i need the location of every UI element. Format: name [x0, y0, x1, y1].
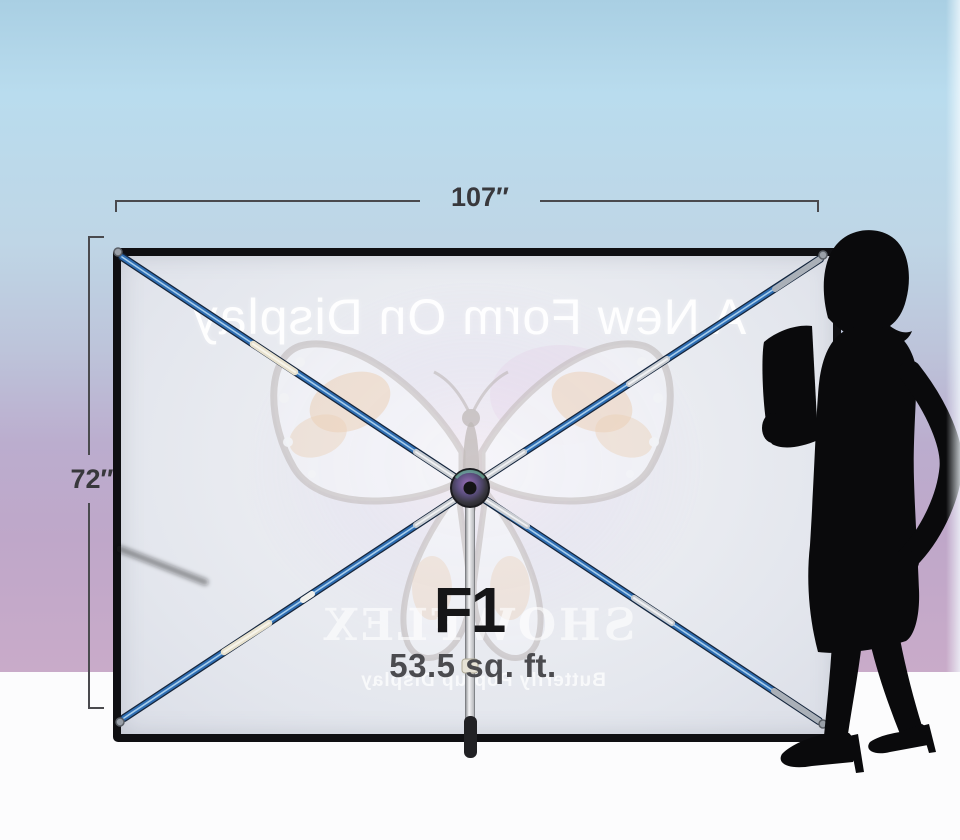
height-dimension-tick-top [88, 236, 104, 238]
width-dimension-label: 107″ [451, 184, 509, 211]
pole-rubber-foot [464, 716, 477, 758]
model-area-label: 53.5 sq. ft. [389, 649, 556, 682]
width-dimension-line-left [115, 200, 420, 202]
product-illustration: A New Form On Display SHOWFLEX Butterfly… [0, 0, 960, 840]
edge-vignette [946, 0, 960, 672]
height-dimension-tick-bottom [88, 707, 104, 709]
model-name-label: F1 [434, 578, 505, 642]
height-dimension-label: 72″ [71, 466, 114, 493]
width-dimension-tick-right [817, 200, 819, 212]
center-hub [451, 469, 489, 507]
frame-structure [0, 0, 960, 840]
woman-silhouette [762, 230, 951, 773]
pole-top-left [122, 257, 468, 486]
fabric-crease-shadow [120, 549, 205, 582]
width-dimension-tick-left [115, 200, 117, 212]
pole-bottom-right [472, 491, 819, 721]
height-dimension-line-top [88, 237, 90, 455]
width-dimension-line-right [540, 200, 819, 202]
height-dimension-line-bottom [88, 503, 90, 709]
